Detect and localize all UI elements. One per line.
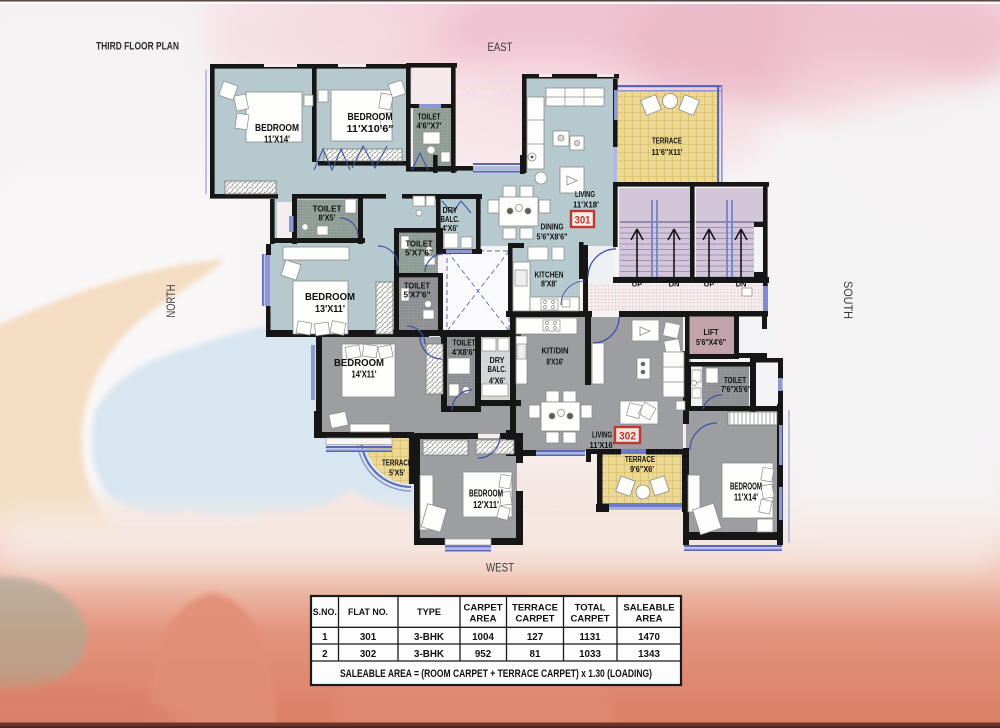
svg-text:UP: UP [632,280,642,289]
svg-text:12'X11': 12'X11' [473,499,499,511]
svg-text:8'X8': 8'X8' [541,279,557,289]
svg-text:BEDROOM: BEDROOM [334,357,384,369]
svg-text:5'X5': 5'X5' [389,469,405,478]
svg-text:LIVING: LIVING [592,430,612,440]
svg-text:2: 2 [322,649,328,660]
svg-text:11'X14': 11'X14' [264,134,290,146]
svg-text:AREA: AREA [636,614,663,625]
svg-text:AREA: AREA [470,614,497,625]
svg-text:SALEABLE AREA = (ROOM CARPET +: SALEABLE AREA = (ROOM CARPET + TERRACE C… [340,668,652,680]
svg-text:TERRACE: TERRACE [512,603,558,614]
svg-text:4'6"X7': 4'6"X7' [417,122,442,131]
svg-text:8'X5': 8'X5' [319,214,336,223]
svg-text:952: 952 [475,649,492,660]
svg-text:BALC.: BALC. [441,215,460,224]
svg-text:TOILET: TOILET [453,339,476,348]
svg-text:1004: 1004 [472,632,494,643]
svg-text:4'X6': 4'X6' [442,224,458,233]
svg-text:DINING: DINING [541,222,564,232]
svg-text:13'X11': 13'X11' [315,303,345,315]
svg-text:5'6"X4'6": 5'6"X4'6" [696,338,726,347]
svg-text:TOTAL: TOTAL [575,603,606,614]
svg-text:TOILET: TOILET [724,376,746,385]
svg-text:5'X7'6": 5'X7'6" [405,249,433,258]
svg-text:UP: UP [704,280,714,289]
svg-text:11'X18': 11'X18' [573,200,599,210]
svg-text:DN: DN [669,280,680,289]
svg-text:1343: 1343 [638,649,660,660]
svg-text:302: 302 [360,649,377,660]
svg-text:THIRD FLOOR PLAN: THIRD FLOOR PLAN [96,41,179,53]
svg-text:4'X8'6": 4'X8'6" [452,348,476,357]
svg-text:FLAT NO.: FLAT NO. [348,607,388,618]
svg-text:1470: 1470 [638,632,660,643]
svg-text:127: 127 [527,632,544,643]
svg-text:14'X11': 14'X11' [352,369,377,381]
svg-text:LIFT: LIFT [704,328,719,337]
svg-text:11'6"X11': 11'6"X11' [652,147,683,157]
svg-text:TOILET: TOILET [313,205,342,214]
svg-text:DRY: DRY [443,206,459,215]
svg-text:DN: DN [736,280,747,289]
svg-text:TOILET: TOILET [418,113,441,122]
svg-text:CARPET: CARPET [570,614,609,625]
svg-text:81: 81 [530,649,541,660]
svg-text:1131: 1131 [579,632,601,643]
svg-text:5'6"X8'6": 5'6"X8'6" [537,232,568,242]
svg-text:3-BHK: 3-BHK [414,632,444,643]
svg-text:11'X14': 11'X14' [734,492,758,504]
svg-text:BEDROOM: BEDROOM [348,111,393,123]
svg-text:CARPET: CARPET [515,614,554,625]
svg-text:301: 301 [575,215,591,227]
svg-text:EAST: EAST [488,42,513,54]
svg-text:DRY: DRY [490,356,506,365]
svg-text:TYPE: TYPE [417,607,441,618]
svg-text:3-BHK: 3-BHK [414,649,444,660]
svg-text:SALEABLE: SALEABLE [623,603,674,614]
svg-text:NORTH: NORTH [166,285,178,318]
svg-text:BALC.: BALC. [488,365,507,374]
svg-text:4'X6': 4'X6' [489,377,505,386]
svg-text:SOUTH: SOUTH [841,281,853,319]
svg-text:BEDROOM: BEDROOM [255,122,299,134]
svg-text:302: 302 [619,431,636,443]
svg-text:KIT/DIN: KIT/DIN [542,346,569,356]
svg-text:5'X7'6": 5'X7'6" [404,291,431,300]
svg-text:BEDROOM: BEDROOM [305,291,355,303]
svg-text:BEDROOM: BEDROOM [469,488,503,500]
svg-text:11'X10'6": 11'X10'6" [347,123,394,135]
svg-text:1033: 1033 [579,649,601,660]
svg-text:11'X16': 11'X16' [590,440,615,450]
svg-text:7'6"X5'6": 7'6"X5'6" [721,385,751,394]
svg-text:9'6"X6': 9'6"X6' [630,464,654,474]
svg-text:TERRACE: TERRACE [652,136,682,146]
svg-text:301: 301 [360,632,377,643]
svg-text:TERRACE: TERRACE [382,459,413,468]
svg-text:CARPET: CARPET [463,603,502,614]
svg-text:LIVING: LIVING [575,189,595,199]
svg-text:TOILET: TOILET [404,282,430,291]
svg-text:S.NO.: S.NO. [313,607,337,618]
svg-text:TOILET: TOILET [406,240,433,249]
svg-text:1: 1 [322,632,328,643]
svg-text:8'X16': 8'X16' [547,357,564,367]
svg-text:WEST: WEST [486,561,515,575]
svg-text:TERRACE: TERRACE [625,454,655,464]
